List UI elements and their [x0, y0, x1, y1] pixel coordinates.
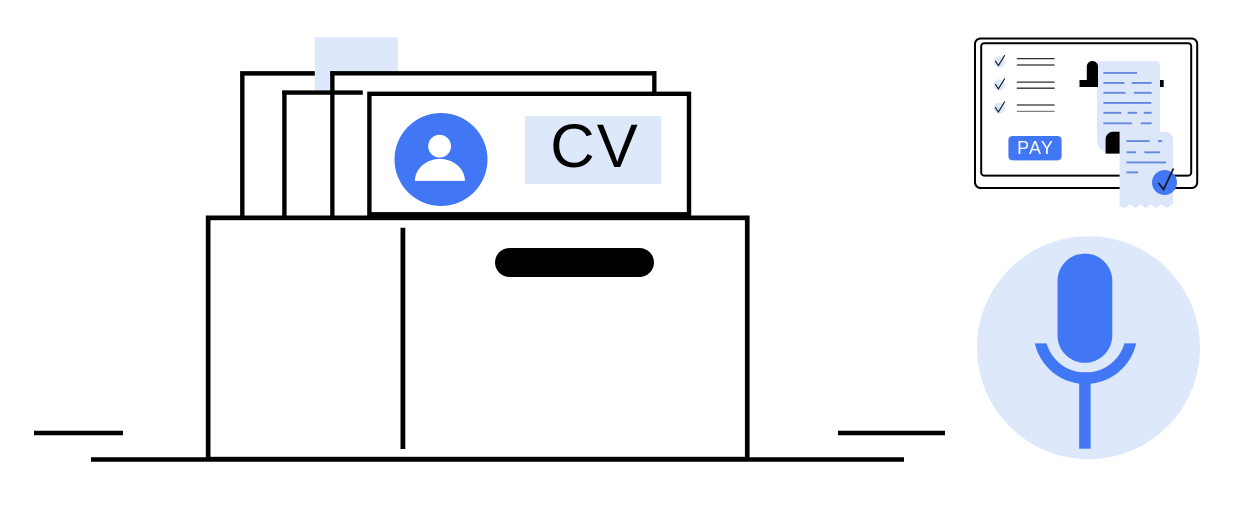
svg-text:PAY: PAY [1017, 138, 1054, 158]
svg-text:CV: CV [550, 112, 639, 181]
